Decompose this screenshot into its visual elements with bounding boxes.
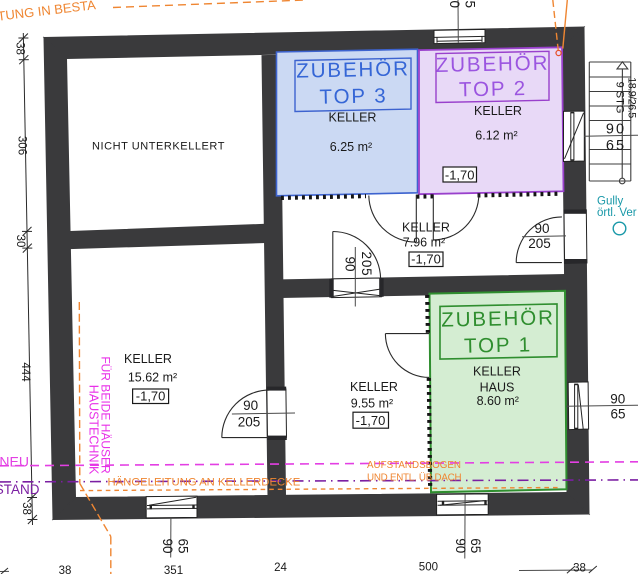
svg-text:500: 500	[419, 561, 438, 573]
svg-text:8.60 m²: 8.60 m²	[477, 394, 519, 408]
svg-text:38: 38	[20, 502, 32, 515]
svg-text:65: 65	[610, 407, 625, 422]
svg-text:65: 65	[606, 138, 626, 154]
svg-text:NICHT UNTERKELLERT: NICHT UNTERKELLERT	[92, 141, 225, 153]
svg-text:-1,70: -1,70	[411, 252, 441, 267]
svg-text:6.12 m²: 6.12 m²	[475, 129, 517, 143]
svg-text:Gully: Gully	[597, 196, 623, 208]
svg-text:18.9/26.5: 18.9/26.5	[625, 77, 637, 118]
svg-text:KELLER: KELLER	[350, 380, 398, 394]
svg-text:205: 205	[238, 415, 261, 430]
svg-text:90: 90	[534, 221, 549, 236]
svg-text:ZUBEHÖR: ZUBEHÖR	[436, 52, 550, 77]
svg-text:205: 205	[359, 252, 374, 277]
svg-text:KELLER: KELLER	[474, 104, 522, 118]
svg-text:90: 90	[447, 0, 462, 8]
svg-text:7.96 m²: 7.96 m²	[403, 235, 445, 249]
svg-text:TOP 1: TOP 1	[464, 333, 532, 357]
svg-text:STAND: STAND	[0, 482, 40, 497]
svg-text:90: 90	[342, 256, 357, 271]
svg-text:90: 90	[606, 121, 626, 137]
svg-text:38: 38	[59, 565, 72, 574]
svg-text:90: 90	[610, 392, 625, 407]
svg-text:90: 90	[453, 538, 468, 553]
svg-text:-1,70: -1,70	[445, 167, 475, 182]
svg-text:TOP 2: TOP 2	[459, 77, 527, 101]
svg-text:351: 351	[164, 565, 183, 574]
svg-text:KELLER: KELLER	[402, 220, 450, 234]
svg-text:90: 90	[243, 398, 258, 413]
svg-text:9 STG: 9 STG	[613, 82, 625, 114]
svg-text:KELLER: KELLER	[124, 352, 172, 366]
svg-text:E NEU: E NEU	[0, 454, 29, 470]
svg-text:HAUSTECHNIK: HAUSTECHNIK	[87, 385, 101, 475]
svg-text:UND ENTL. ÜB DACH: UND ENTL. ÜB DACH	[367, 473, 461, 484]
svg-text:38: 38	[14, 42, 26, 55]
svg-text:AUFSTANDSBOGEN: AUFSTANDSBOGEN	[367, 460, 461, 471]
svg-text:15.62 m²: 15.62 m²	[128, 370, 177, 384]
svg-text:30: 30	[14, 235, 26, 248]
svg-text:-1,70: -1,70	[356, 413, 386, 428]
svg-text:205: 205	[528, 236, 551, 251]
svg-text:TOP 3: TOP 3	[319, 84, 387, 108]
svg-text:HAUS: HAUS	[480, 381, 515, 395]
svg-text:6.25 m²: 6.25 m²	[330, 140, 372, 154]
svg-text:KELLER: KELLER	[473, 364, 521, 378]
svg-text:65: 65	[463, 0, 478, 8]
svg-text:ZUBEHÖR: ZUBEHÖR	[296, 57, 410, 82]
svg-text:-1,70: -1,70	[136, 389, 166, 404]
svg-text:9.55 m²: 9.55 m²	[351, 397, 393, 411]
svg-text:65: 65	[176, 538, 191, 553]
svg-text:90: 90	[160, 538, 175, 553]
svg-text:KELLER: KELLER	[329, 111, 377, 125]
svg-text:306: 306	[16, 136, 28, 155]
svg-text:HÄNGELEITUNG AN KELLERDECKE: HÄNGELEITUNG AN KELLERDECKE	[108, 477, 301, 489]
svg-text:38: 38	[573, 563, 586, 574]
svg-text:ZUBEHÖR: ZUBEHÖR	[441, 306, 555, 331]
svg-text:örtl. Ver: örtl. Ver	[597, 207, 637, 219]
svg-text:24: 24	[274, 562, 287, 574]
svg-text:444: 444	[19, 362, 31, 382]
svg-text:65: 65	[468, 538, 483, 553]
